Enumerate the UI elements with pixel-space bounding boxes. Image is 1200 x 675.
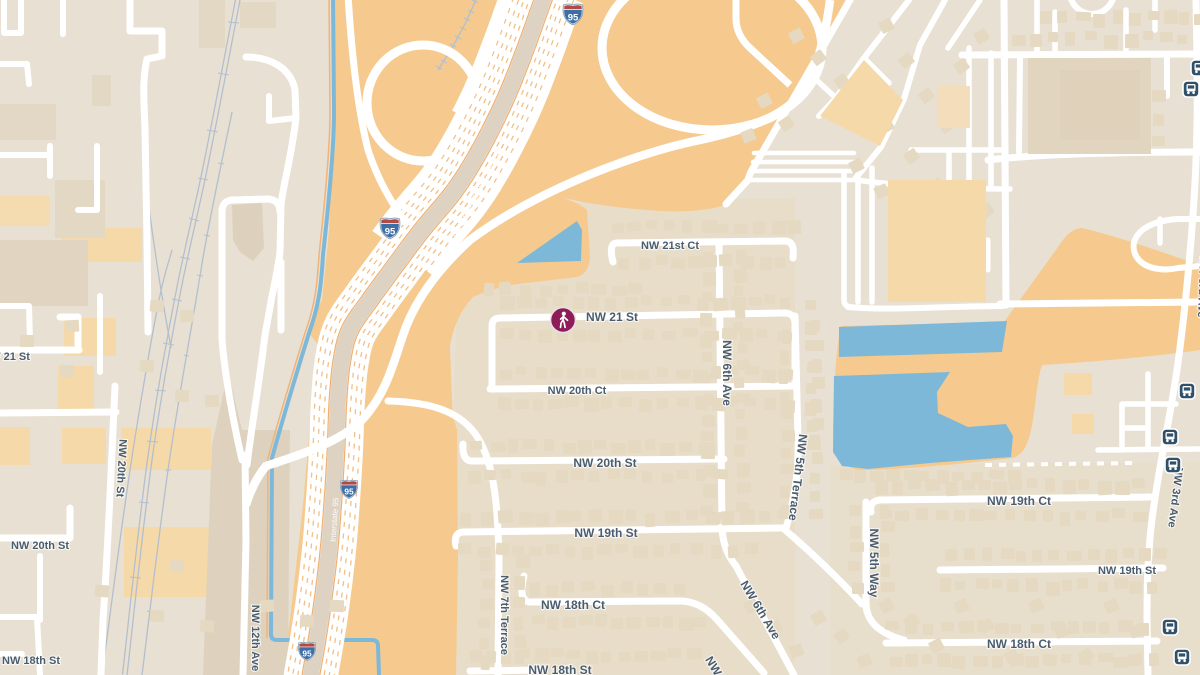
svg-text:NW 18th Ct: NW 18th Ct bbox=[987, 637, 1051, 651]
svg-text:NW 19th St: NW 19th St bbox=[1098, 565, 1156, 577]
svg-text:NW 7th Terrace: NW 7th Terrace bbox=[498, 575, 510, 655]
svg-text:NW 20th St: NW 20th St bbox=[11, 540, 69, 552]
svg-text:95: 95 bbox=[302, 649, 312, 659]
svg-text:95: 95 bbox=[568, 12, 579, 23]
svg-text:NW 18th Ct: NW 18th Ct bbox=[541, 598, 605, 612]
svg-text:W 21 St: W 21 St bbox=[0, 351, 30, 363]
svg-text:NW 20th Ct: NW 20th Ct bbox=[548, 385, 607, 397]
svg-text:NW 18th St: NW 18th St bbox=[528, 663, 591, 675]
svg-text:NW 19th St: NW 19th St bbox=[574, 526, 637, 540]
svg-text:NW 21 St: NW 21 St bbox=[586, 310, 638, 324]
svg-text:NW 18th St: NW 18th St bbox=[2, 655, 60, 667]
svg-text:NW 12th Ave: NW 12th Ave bbox=[249, 605, 261, 671]
svg-text:95: 95 bbox=[385, 226, 396, 237]
svg-text:95: 95 bbox=[344, 487, 354, 497]
svg-text:NW 5th Way: NW 5th Way bbox=[867, 529, 881, 598]
svg-text:NW 19th Ct: NW 19th Ct bbox=[987, 494, 1051, 508]
svg-text:NW 20th St: NW 20th St bbox=[573, 456, 636, 470]
svg-text:NW 21st Ct: NW 21st Ct bbox=[641, 240, 699, 252]
svg-text:NW 6th Ave: NW 6th Ave bbox=[720, 340, 734, 406]
